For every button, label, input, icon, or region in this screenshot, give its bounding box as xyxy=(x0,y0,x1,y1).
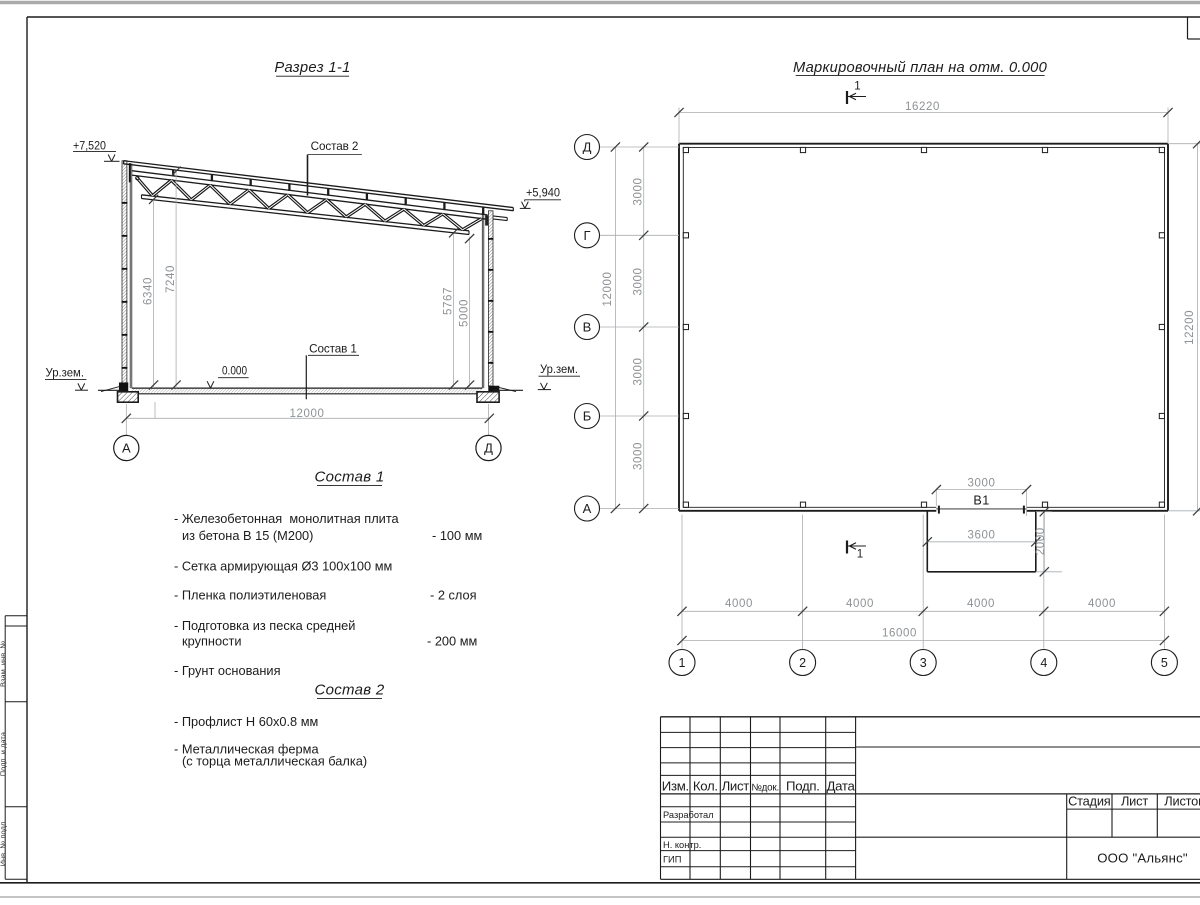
svg-text:- Грунт основания: - Грунт основания xyxy=(174,663,281,678)
svg-text:3000: 3000 xyxy=(968,477,996,489)
svg-text:Инв. № подл.: Инв. № подл. xyxy=(0,820,8,867)
svg-text:+5,940: +5,940 xyxy=(526,188,560,200)
svg-text:Б: Б xyxy=(583,409,592,424)
svg-text:№док.: №док. xyxy=(751,783,779,794)
svg-text:16000: 16000 xyxy=(882,627,917,639)
svg-text:+7,520: +7,520 xyxy=(73,141,106,153)
svg-text:4000: 4000 xyxy=(1088,598,1116,610)
svg-text:- 2 слоя: - 2 слоя xyxy=(430,588,477,603)
svg-text:ООО "Альянс": ООО "Альянс" xyxy=(1097,851,1188,866)
svg-text:Ур.зем.: Ур.зем. xyxy=(540,364,578,376)
svg-text:3000: 3000 xyxy=(632,178,644,206)
svg-text:Лист: Лист xyxy=(1121,794,1148,809)
svg-text:- 200 мм: - 200 мм xyxy=(427,634,477,649)
svg-text:- Профлист Н 60х0.8 мм: - Профлист Н 60х0.8 мм xyxy=(174,714,318,729)
svg-text:- Сетка армирующая Ø3 100х100: - Сетка армирующая Ø3 100х100 мм xyxy=(174,559,392,574)
svg-text:из бетона В 15 (М200): из бетона В 15 (М200) xyxy=(182,528,313,543)
svg-text:Состав 1: Состав 1 xyxy=(314,469,384,486)
svg-text:1: 1 xyxy=(857,549,863,561)
svg-text:Разрез 1-1: Разрез 1-1 xyxy=(274,60,350,76)
svg-text:Подп. и дата: Подп. и дата xyxy=(0,731,8,776)
svg-text:1: 1 xyxy=(854,80,860,92)
svg-text:Изм.: Изм. xyxy=(662,779,689,794)
svg-text:12000: 12000 xyxy=(290,408,325,420)
svg-text:4: 4 xyxy=(1040,656,1047,670)
svg-text:3000: 3000 xyxy=(632,268,644,296)
svg-text:2000: 2000 xyxy=(1035,527,1047,555)
svg-text:4000: 4000 xyxy=(967,598,995,610)
svg-text:Ур.зем.: Ур.зем. xyxy=(46,367,85,379)
svg-text:0.000: 0.000 xyxy=(222,366,247,378)
svg-text:Подп.: Подп. xyxy=(786,779,820,794)
svg-text:- Железобетонная монолитная п: - Железобетонная монолитная плита xyxy=(174,511,400,526)
svg-text:Г: Г xyxy=(583,228,590,243)
svg-text:Д: Д xyxy=(583,140,592,155)
svg-text:3: 3 xyxy=(920,656,927,670)
svg-text:6340: 6340 xyxy=(142,277,154,305)
svg-text:Стадия: Стадия xyxy=(1068,794,1111,809)
svg-text:3000: 3000 xyxy=(632,358,644,386)
svg-text:Состав 2: Состав 2 xyxy=(314,682,384,699)
svg-text:5: 5 xyxy=(1161,656,1168,670)
svg-text:В: В xyxy=(583,320,592,335)
svg-text:(с торца металлическая балка): (с торца металлическая балка) xyxy=(182,754,367,769)
svg-text:Н. контр.: Н. контр. xyxy=(663,840,701,850)
svg-text:В1: В1 xyxy=(973,493,989,507)
svg-text:12200: 12200 xyxy=(1184,310,1196,345)
svg-text:ГИП: ГИП xyxy=(663,855,681,865)
svg-text:Маркировочный план на отм. 0.0: Маркировочный план на отм. 0.000 xyxy=(793,60,1048,76)
svg-text:4000: 4000 xyxy=(846,598,874,610)
svg-text:16220: 16220 xyxy=(905,101,940,113)
svg-text:2: 2 xyxy=(799,656,806,670)
svg-text:- 100 мм: - 100 мм xyxy=(432,528,482,543)
svg-text:3600: 3600 xyxy=(968,529,996,541)
svg-text:Состав 2: Состав 2 xyxy=(311,140,359,153)
svg-text:Д: Д xyxy=(484,441,493,456)
svg-text:Разработал: Разработал xyxy=(663,810,714,820)
svg-text:3000: 3000 xyxy=(632,442,644,470)
svg-text:Дата: Дата xyxy=(826,779,855,794)
svg-text:12000: 12000 xyxy=(602,272,614,307)
svg-text:Лист: Лист xyxy=(722,779,750,794)
svg-text:7240: 7240 xyxy=(165,265,177,293)
svg-text:5000: 5000 xyxy=(459,299,471,327)
svg-text:А: А xyxy=(583,501,592,516)
svg-text:Кол.: Кол. xyxy=(693,779,718,794)
svg-text:1: 1 xyxy=(679,656,686,670)
svg-text:Состав 1: Состав 1 xyxy=(309,342,357,355)
svg-text:5767: 5767 xyxy=(443,287,455,315)
svg-text:4000: 4000 xyxy=(725,598,753,610)
svg-text:А: А xyxy=(122,441,131,456)
svg-text:- Подготовка из песка средней: - Подготовка из песка средней xyxy=(174,618,355,633)
svg-text:крупности: крупности xyxy=(182,634,242,649)
svg-text:Листов: Листов xyxy=(1164,794,1200,809)
svg-text:Взам. инв. №: Взам. инв. № xyxy=(0,641,8,687)
svg-text:- Пленка полиэтиленовая: - Пленка полиэтиленовая xyxy=(174,588,326,603)
